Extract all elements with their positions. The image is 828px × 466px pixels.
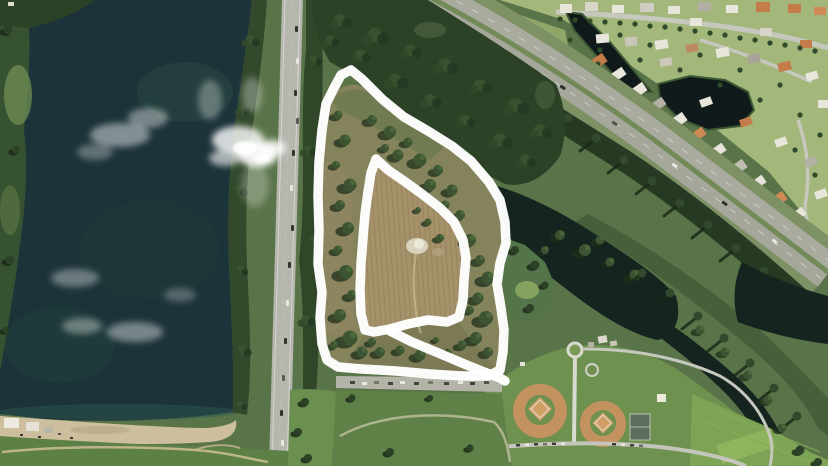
park-promenade	[574, 358, 575, 442]
park-plaza-circle	[568, 343, 582, 357]
baseball-diamond-1	[513, 384, 567, 438]
satellite-map-view	[0, 0, 828, 466]
highway-east-verge	[288, 389, 338, 466]
lake	[0, 0, 252, 421]
baseball-diamond-2	[580, 401, 626, 447]
